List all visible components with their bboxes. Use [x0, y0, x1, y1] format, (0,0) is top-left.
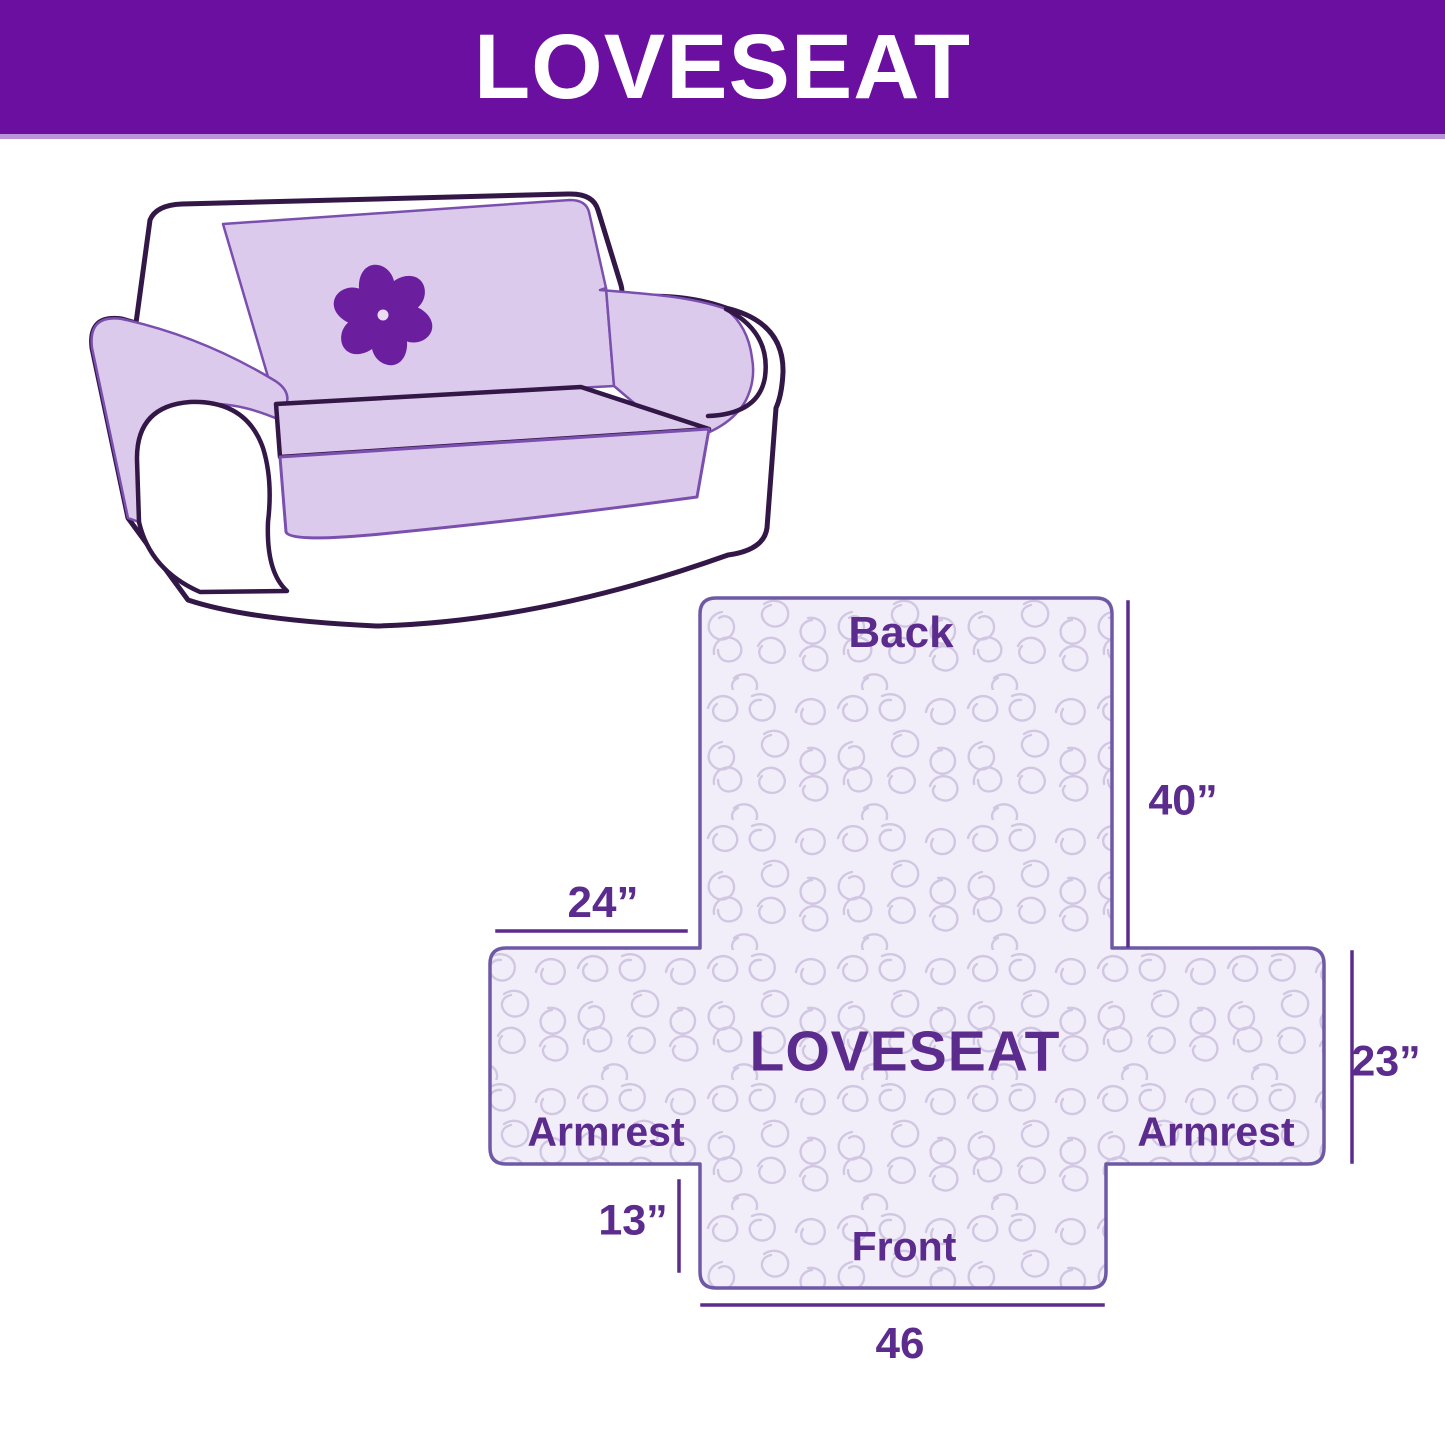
cover-dimension-diagram: [440, 560, 1445, 1405]
front-width-dimension: 46: [876, 1322, 925, 1366]
armrest-left-label: Armrest: [527, 1112, 684, 1153]
armrest-top-dimension: 24”: [568, 881, 639, 925]
back-section-label: Back: [848, 611, 953, 655]
cover-cross-shape: [490, 598, 1324, 1288]
front-drop-dimension: 13”: [598, 1200, 667, 1243]
page-title: LOVESEAT: [474, 21, 971, 113]
armrest-height-dimension: 23”: [1351, 1041, 1420, 1084]
back-height-dimension: 40”: [1148, 780, 1217, 823]
page: LOVESEAT: [0, 0, 1445, 1445]
product-name-label: LOVESEAT: [750, 1024, 1061, 1081]
armrest-right-label: Armrest: [1137, 1112, 1294, 1153]
front-section-label: Front: [852, 1227, 957, 1268]
header-banner: LOVESEAT: [0, 0, 1445, 139]
